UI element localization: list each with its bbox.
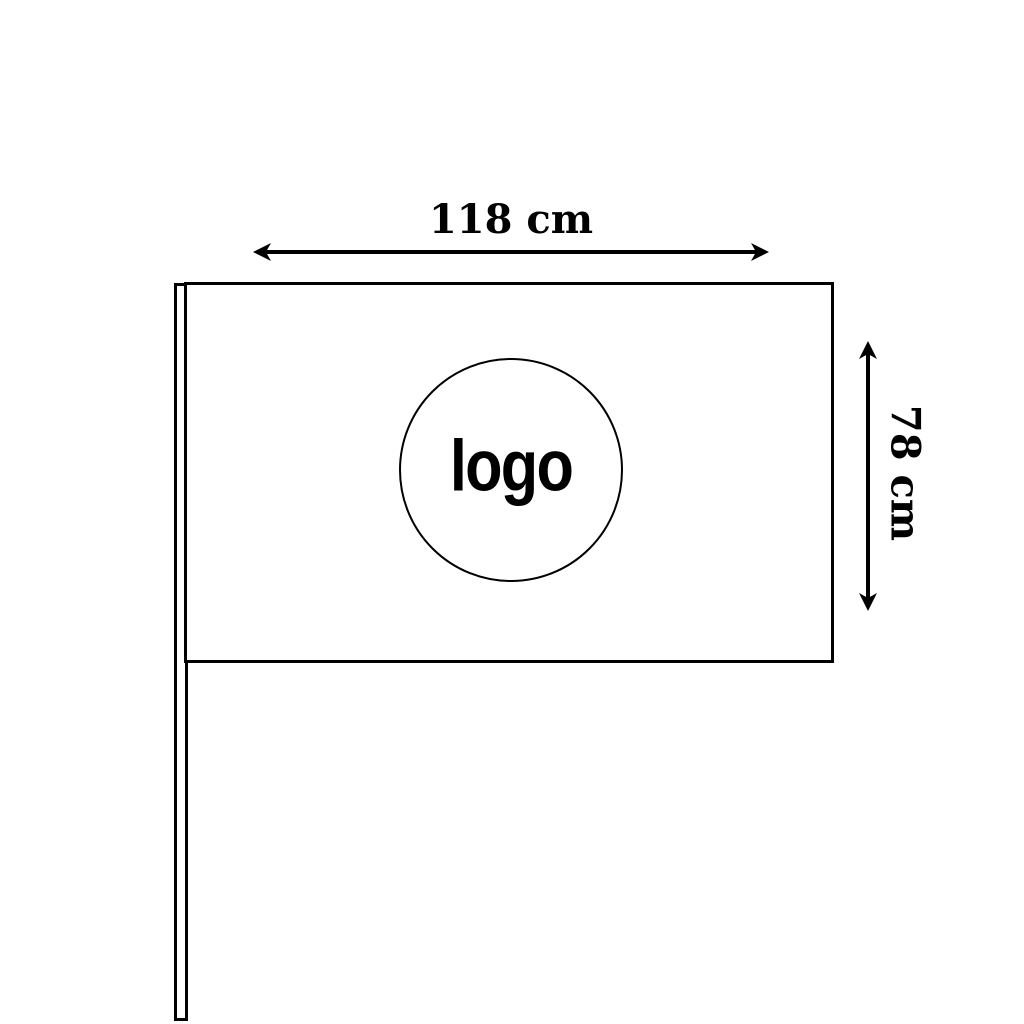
width-dimension-label: 118 cm [262, 196, 760, 243]
logo-label: logo [450, 426, 572, 508]
height-dimension-label: 78 cm [882, 405, 929, 541]
flag-dimension-diagram: logo 118 cm 78 cm [0, 0, 1024, 1024]
